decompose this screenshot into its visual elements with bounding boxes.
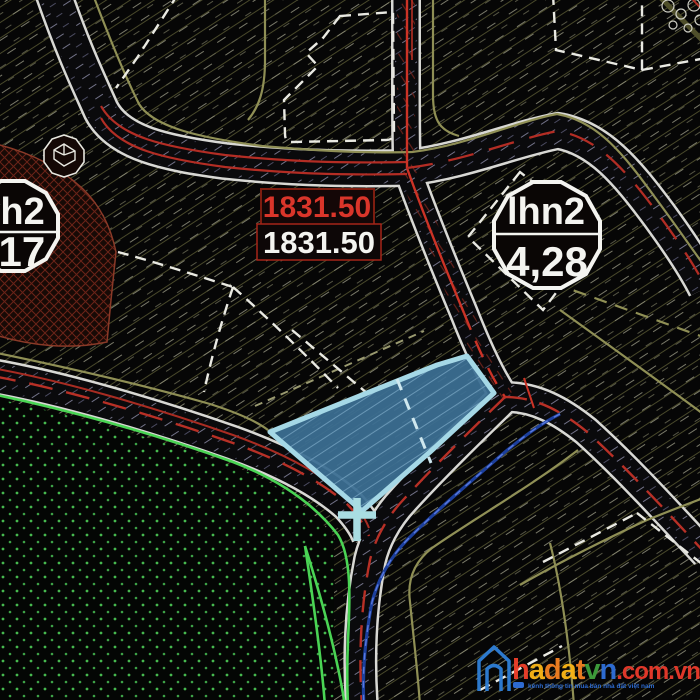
landmark-icon xyxy=(44,135,84,177)
logo-text: hadatvn.com.vn xyxy=(512,654,700,686)
zone-value-left: ,17 xyxy=(0,228,45,275)
elevation-label-white: 1831.50 xyxy=(257,224,381,260)
zone-code-left: vh2 xyxy=(0,191,45,233)
zone-label-right: lhn2 4,28 xyxy=(494,182,600,288)
cadastral-map[interactable]: vh2 ,17 lhn2 4,28 1831.50 1831.50 hadatv… xyxy=(0,0,700,700)
svg-text:1831.50: 1831.50 xyxy=(263,225,375,260)
svg-text:1831.50: 1831.50 xyxy=(263,191,371,224)
zone-value-right: 4,28 xyxy=(506,238,588,285)
zone-code-right: lhn2 xyxy=(507,191,585,233)
elevation-label-red: 1831.50 xyxy=(261,189,374,225)
logo-tagline: kênh thông tin mua bán nhà đất việt nam xyxy=(528,682,655,690)
